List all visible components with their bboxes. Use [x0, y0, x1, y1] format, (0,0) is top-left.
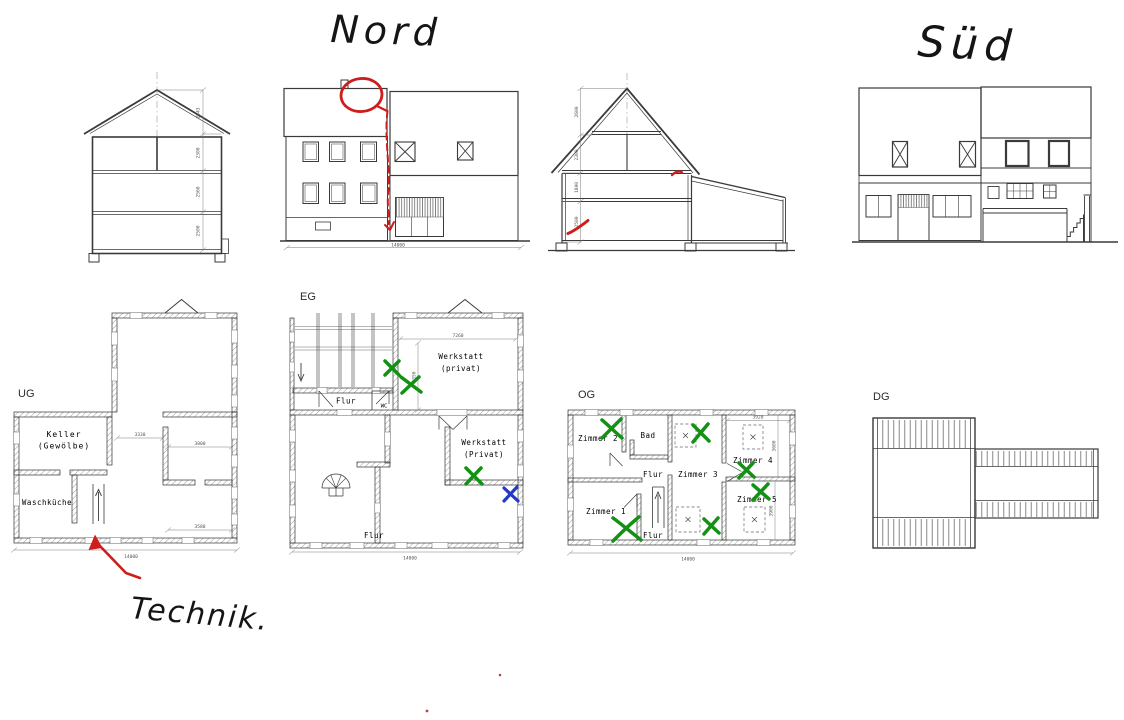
lean-to: [692, 177, 789, 244]
stray-red-dot: [426, 710, 429, 713]
room-label-bad: Bad: [640, 431, 655, 440]
window: [866, 195, 971, 241]
dim-label: 3600: [772, 440, 778, 451]
stair-up: [653, 487, 665, 528]
dim-label: 3330: [134, 432, 145, 438]
room-label-wc: WC: [381, 404, 388, 410]
dim-label: 2300: [574, 149, 580, 160]
green-x-mark: [704, 518, 719, 534]
room-label-keller-2: (Gewölbe): [38, 442, 90, 451]
green-x-mark: [693, 424, 709, 442]
window: [290, 313, 524, 549]
room-label-keller: Keller: [47, 430, 82, 439]
room-label-flur-mid: Flur: [643, 470, 663, 479]
loft-x-window: [395, 142, 473, 162]
exterior-stairs: [1067, 215, 1084, 242]
blue-x-mark: [504, 487, 518, 501]
dim-label: 1800: [574, 182, 580, 193]
window: [14, 313, 238, 544]
room-label-flur-top: Flur: [336, 397, 356, 406]
dim-label: 2500: [196, 225, 202, 236]
room-label-werkstatt-low-2: (Privat): [464, 450, 504, 459]
floor-label-dg: DG: [873, 391, 890, 403]
room-label-zimmer1: Zimmer 1: [586, 507, 626, 516]
porch-gable: [448, 300, 482, 314]
room-label-werkstatt-low: Werkstatt: [461, 438, 506, 447]
plan-ug: UG 3330: [11, 300, 240, 561]
room-label-waschkueche: Waschküche: [22, 498, 72, 507]
dimension-lines: 2600 2300 1800 2500: [562, 86, 627, 245]
dim-label: 14000: [391, 242, 405, 248]
drawing-sheet: 2543 2300 2560 2500: [0, 0, 1124, 720]
dim-label: 14000: [403, 556, 417, 562]
plan-og: OG: [567, 389, 796, 563]
handwriting-technik: Technik.: [129, 591, 270, 638]
cross-section-west-drawing: 2543 2300 2560 2500: [84, 72, 230, 262]
room-label-flur-bottom: Flur: [643, 531, 663, 540]
window: [303, 142, 377, 230]
handwriting-nord: Nord: [330, 7, 443, 55]
stray-red-dot: [499, 674, 502, 677]
plan-dg: DG: [873, 391, 1098, 548]
dim-label: 3580: [194, 524, 205, 530]
dim-label: 3920: [752, 414, 763, 420]
dimension-lines: 2543 2300 2560 2500: [157, 88, 222, 253]
dim-label: 2600: [574, 106, 580, 117]
garage-opening: [983, 209, 1067, 242]
carport-structure: [293, 313, 393, 387]
dim-label: 3900: [769, 505, 775, 516]
stair-up: [93, 484, 104, 524]
floor-label-ug: UG: [18, 388, 35, 400]
floor-label-og: OG: [578, 389, 595, 401]
dim-label: 3800: [194, 441, 205, 447]
dim-label: 2300: [196, 147, 202, 158]
cross-section-mid-drawing: 2600 2300 1800 2500: [548, 73, 795, 251]
room-label-zimmer2: Zimmer 2: [578, 434, 618, 443]
room-label-werkstatt-top: Werkstatt: [438, 352, 483, 361]
dimension-lines: 14000: [284, 242, 524, 250]
porch-gable: [165, 300, 198, 314]
red-chimney-circle-annotation: [339, 76, 387, 113]
dim-label: 14000: [124, 554, 138, 560]
room-label-werkstatt-top-2: (privat): [441, 364, 481, 373]
barn-door: [396, 198, 444, 237]
dim-label: 2543: [196, 107, 202, 118]
architectural-drawing-canvas: 2543 2300 2560 2500: [0, 0, 1124, 720]
north-elevation-drawing: 14000: [280, 80, 530, 250]
floor-label-eg: EG: [300, 291, 316, 303]
spiral-stair: [322, 474, 350, 496]
south-elevation-drawing: [852, 87, 1118, 242]
dim-label: 2560: [196, 186, 202, 197]
room-label-flur-bottom: Flur: [364, 531, 384, 540]
loft-x-window: [893, 142, 976, 168]
dimension-lines: 7260 5350 14000: [289, 333, 523, 562]
stair-down-arrow: [298, 363, 304, 381]
green-x-mark: [739, 463, 754, 478]
plan-eg: EG: [289, 291, 524, 562]
window: [988, 184, 1056, 199]
dim-label: 7260: [452, 333, 463, 339]
handwriting-sued: Süd: [916, 17, 1018, 72]
room-label-zimmer3: Zimmer 3: [678, 470, 718, 479]
dim-label: 14000: [681, 557, 695, 563]
